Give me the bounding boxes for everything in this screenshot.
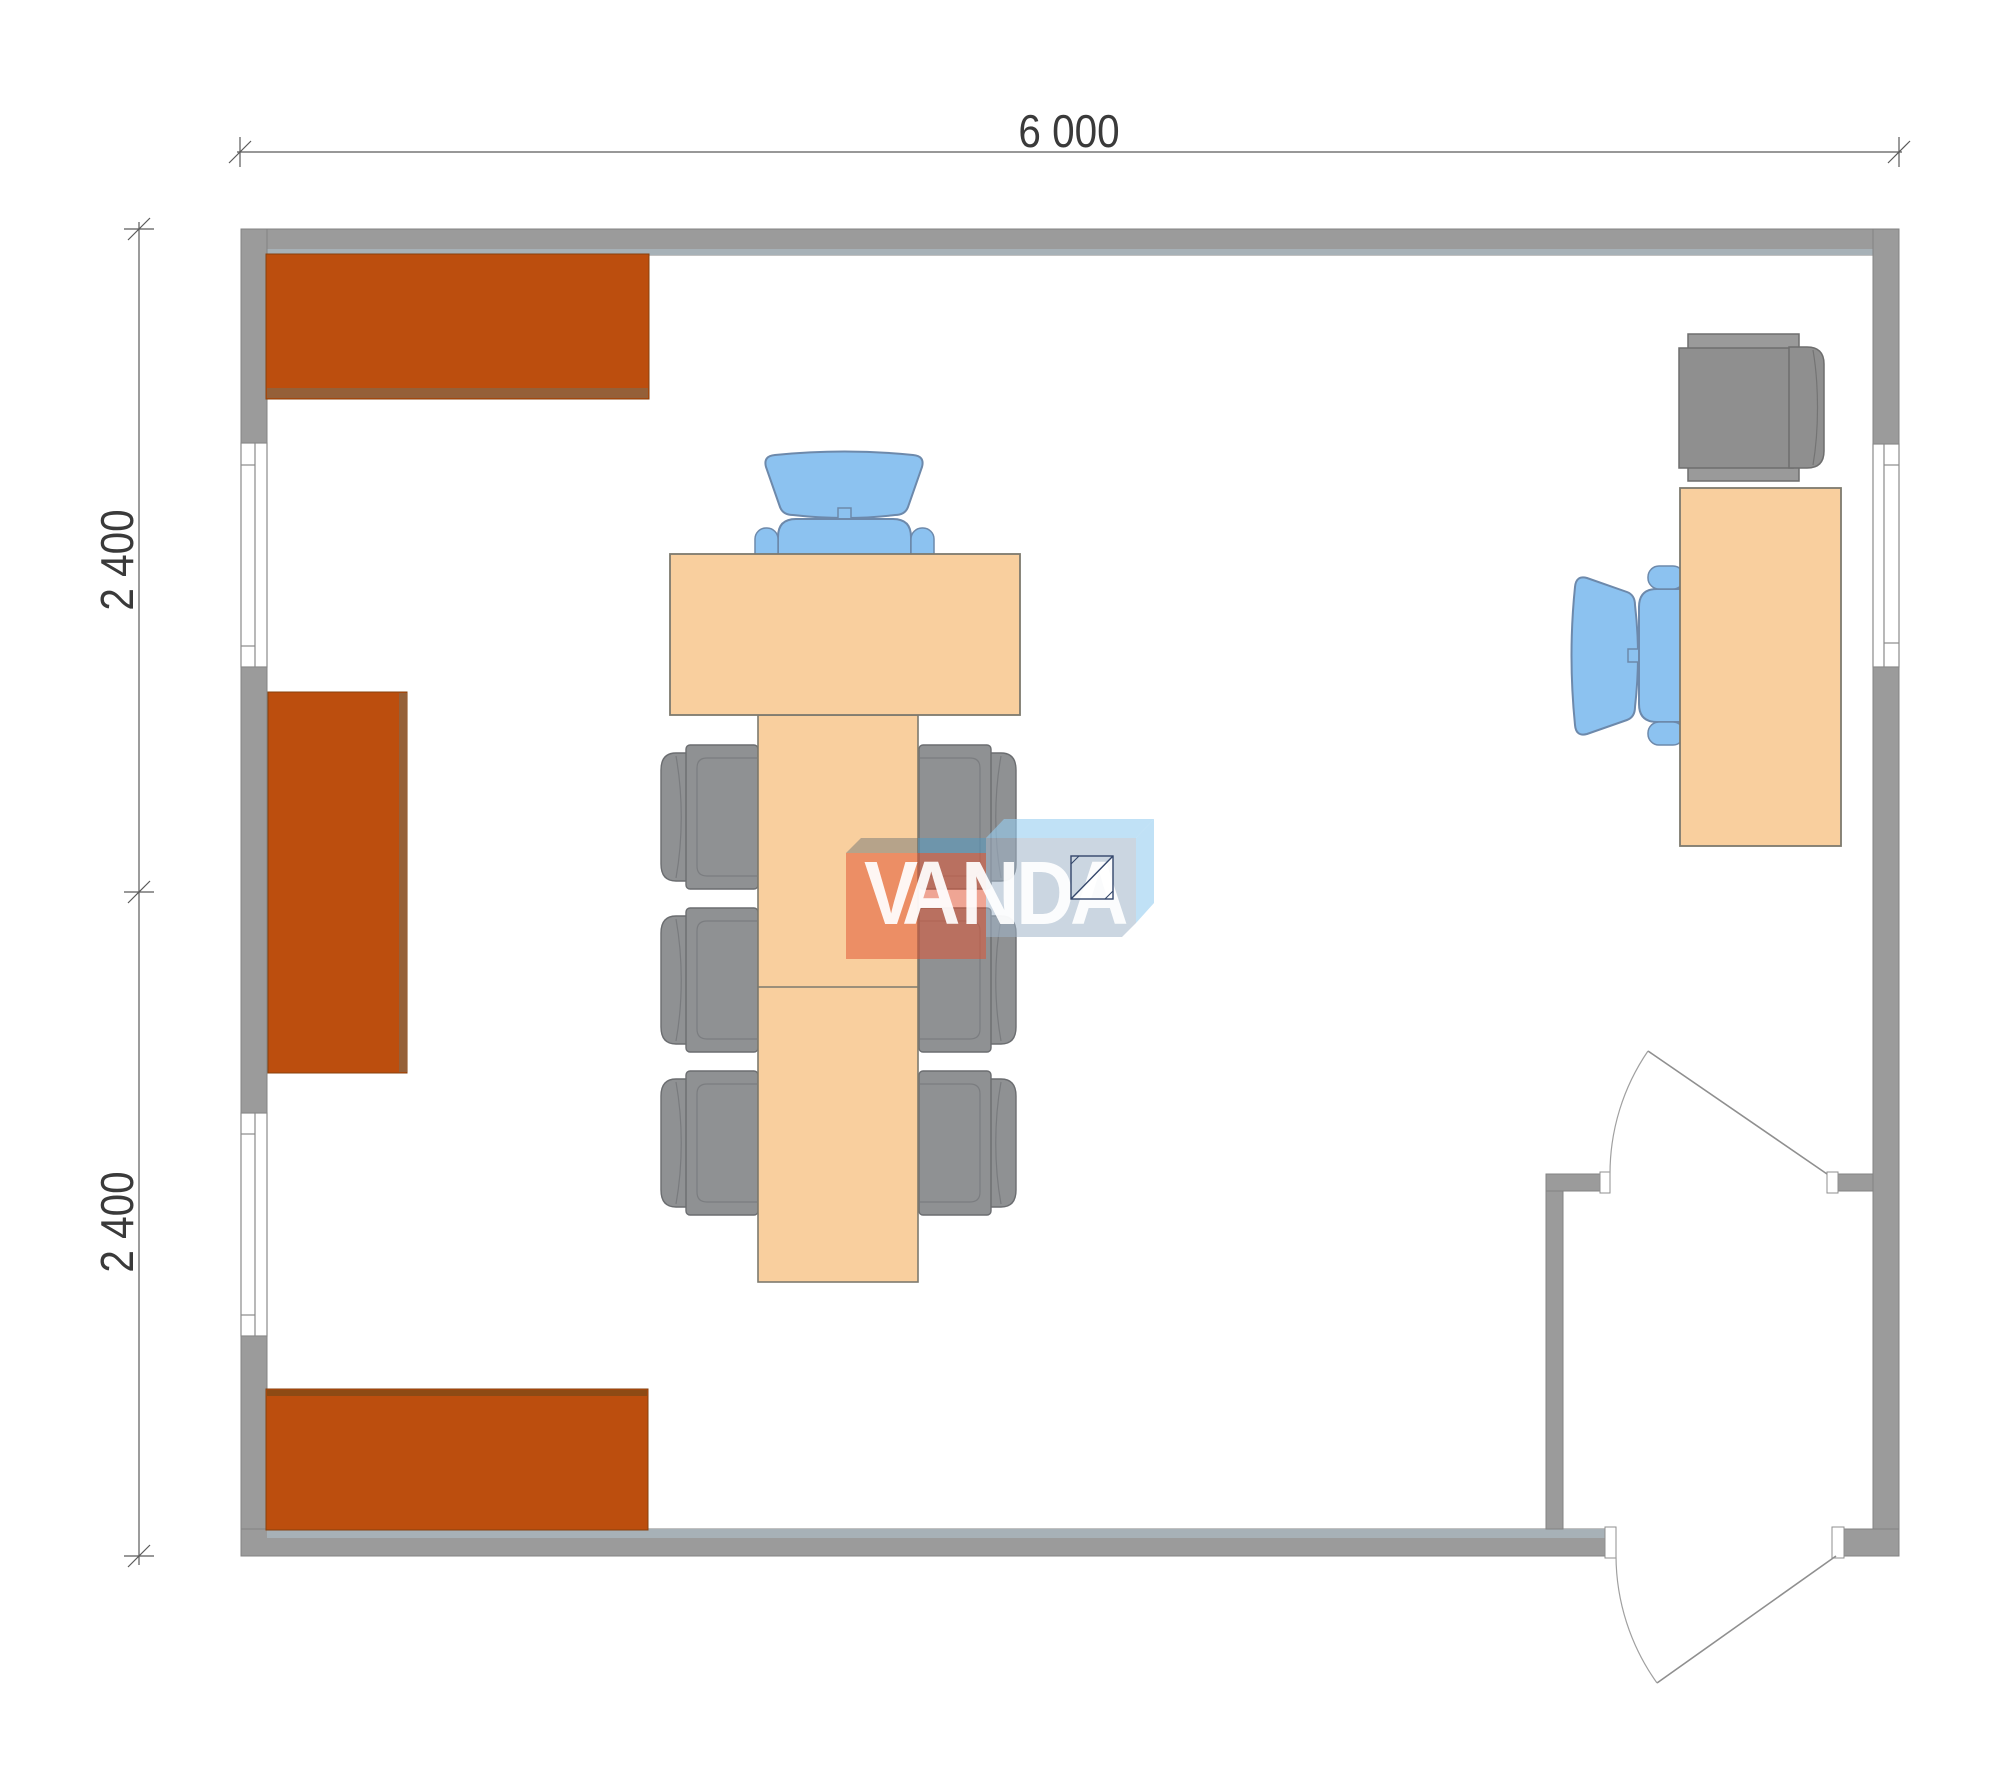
- svg-text:6 000: 6 000: [1018, 107, 1119, 158]
- svg-text:N: N: [961, 843, 1019, 944]
- svg-text:2 400: 2 400: [93, 509, 144, 610]
- svg-text:2 400: 2 400: [93, 1171, 144, 1272]
- svg-text:A: A: [902, 843, 960, 944]
- svg-text:D: D: [1016, 843, 1074, 944]
